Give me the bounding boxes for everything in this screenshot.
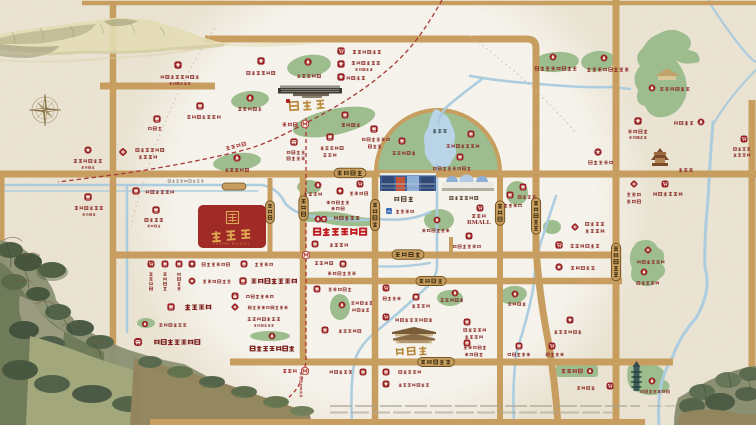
svg-text:SHANHE MAJESTY: SHANHE MAJESTY bbox=[214, 243, 251, 246]
svg-text:RMALL: RMALL bbox=[467, 219, 491, 226]
